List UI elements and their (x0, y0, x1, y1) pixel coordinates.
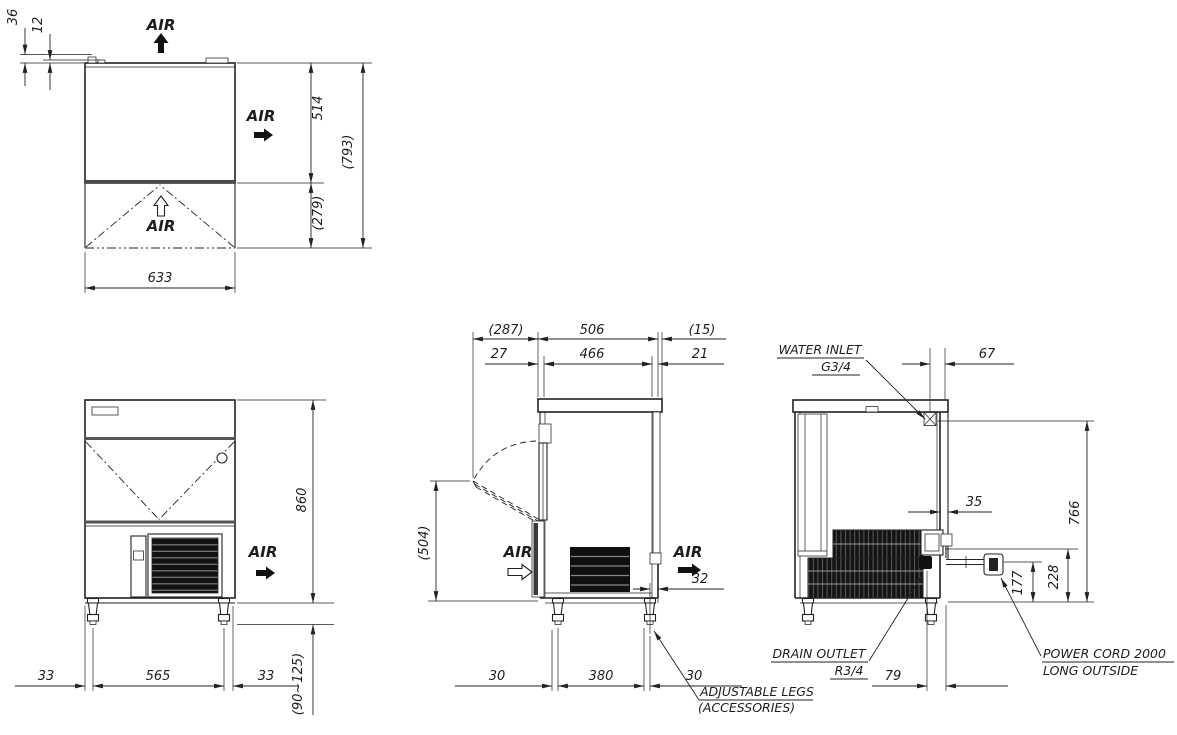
side-view: AIR AIR (287) 506 (15) 27 466 21 (504) (417, 323, 814, 715)
door-open-dashed (473, 441, 542, 526)
top-view: AIR AIR AIR 36 12 514 (793) (279) 633 (6, 9, 372, 293)
drain-outlet-fitting (919, 556, 932, 569)
air-label-top: AIR (146, 16, 176, 34)
top-view-hinge-bracket-right (206, 58, 228, 63)
condenser-grille (152, 538, 218, 593)
dim-27: 27 (491, 347, 508, 362)
front-view-nameplate (92, 407, 118, 415)
note-adjustable-legs-line1: ADJUSTABLE LEGS (699, 684, 814, 699)
rear-panel-strip (653, 412, 660, 553)
door-swing-dash-left (86, 185, 160, 247)
dim-35: 35 (966, 495, 983, 510)
air-label-side-out: AIR (673, 543, 703, 561)
dim-33-left: 33 (38, 669, 55, 684)
dim-506: 506 (580, 323, 605, 338)
dim-504: (504) (417, 526, 432, 561)
dim-793: (793) (341, 135, 356, 170)
dim-30-front: 30 (489, 669, 506, 684)
front-view-door-bottom-band (85, 521, 235, 524)
water-inlet-fitting (924, 413, 936, 426)
air-out-arrow-icon (256, 567, 275, 580)
dim-21: 21 (692, 347, 709, 362)
note-drain-outlet-line2: R3/4 (835, 663, 864, 678)
rear-panel-bracket (650, 553, 661, 564)
top-view-cabinet-outline (85, 63, 235, 183)
dim-33-right: 33 (258, 669, 275, 684)
dim-67: 67 (979, 347, 996, 362)
dim-565: 565 (146, 669, 171, 684)
rear-left-channel (798, 414, 827, 556)
dim-36: 36 (6, 9, 21, 26)
dim-228: 228 (1047, 565, 1062, 590)
rear-view-label-plate (866, 407, 878, 413)
rear-view-legs (803, 599, 937, 625)
top-view-front-edge (85, 180, 235, 184)
side-view-top-cap (538, 399, 662, 412)
air-label-front: AIR (146, 217, 176, 235)
rear-view: 67 35 766 228 177 79 WATER INLET G3/4 DR… (771, 342, 1174, 691)
dim-380: 380 (589, 669, 614, 684)
note-power-cord-line1: POWER CORD 2000 (1043, 646, 1166, 661)
dim-30-rear: 30 (686, 669, 703, 684)
note-drain-outlet-line1: DRAIN OUTLET (773, 646, 867, 661)
front-view-legs (88, 599, 230, 625)
note-water-inlet-line1: WATER INLET (778, 342, 862, 357)
control-box-window (134, 551, 144, 560)
side-view-legs (553, 599, 656, 625)
dim-177: 177 (1011, 570, 1026, 596)
ice-machine-dimension-drawing: AIR AIR AIR 36 12 514 (793) (279) 633 (0, 0, 1177, 735)
air-label-front-out: AIR (248, 543, 278, 561)
dim-287: (287) (489, 323, 524, 338)
cord-elbow (941, 534, 952, 546)
dim-leg-height: (90~125) (291, 653, 306, 715)
technical-drawing-page: AIR AIR AIR 36 12 514 (793) (279) 633 (0, 0, 1177, 735)
front-view-top-band (85, 437, 235, 440)
dim-860: 860 (295, 488, 310, 513)
control-box (131, 536, 146, 597)
dim-15: (15) (689, 323, 716, 338)
dim-12: 12 (31, 17, 46, 34)
dim-466: 466 (580, 347, 605, 362)
note-adjustable-legs-line2: (ACCESSORIES) (698, 700, 795, 715)
note-water-inlet-line2: G3/4 (821, 359, 851, 374)
adjustable-legs-leader (654, 631, 699, 700)
front-view: AIR 860 (90~125) 33 565 33 (15, 400, 334, 715)
door-swing-dash-right (160, 185, 234, 247)
note-power-cord-line2: LONG OUTSIDE (1043, 663, 1138, 678)
dim-79: 79 (885, 669, 902, 684)
air-label-side: AIR (246, 107, 276, 125)
rear-condenser-lower (808, 558, 923, 598)
dim-32: 32 (692, 572, 709, 587)
dim-766: 766 (1068, 501, 1083, 526)
door-top-trim (539, 424, 551, 443)
air-label-side-in: AIR (503, 543, 533, 561)
door-swing-arc (473, 441, 536, 481)
door-knob (217, 453, 227, 463)
air-up-arrow-icon (154, 33, 169, 53)
dim-279: (279) (311, 196, 326, 231)
air-in-hollow-arrow-icon (508, 565, 532, 580)
dim-514: 514 (311, 96, 326, 121)
air-right-arrow-icon (254, 129, 273, 142)
dim-633: 633 (148, 271, 173, 286)
air-hollow-up-arrow-icon (154, 196, 168, 216)
